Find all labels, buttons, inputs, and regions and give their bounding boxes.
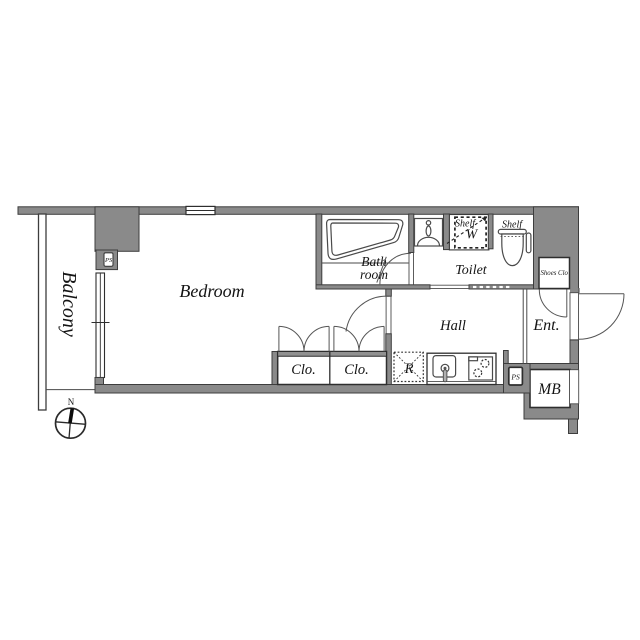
- svg-text:W: W: [466, 227, 479, 242]
- svg-text:Hall: Hall: [439, 318, 466, 334]
- svg-text:Bedroom: Bedroom: [179, 281, 244, 301]
- svg-text:PS: PS: [510, 373, 520, 382]
- svg-text:PS: PS: [104, 257, 113, 264]
- svg-text:N: N: [68, 397, 75, 407]
- svg-text:Toilet: Toilet: [455, 263, 487, 278]
- svg-text:Clo.: Clo.: [344, 362, 369, 378]
- svg-text:MB: MB: [537, 381, 561, 398]
- svg-text:R: R: [404, 361, 414, 377]
- svg-text:Shoes Clo: Shoes Clo: [541, 270, 569, 277]
- svg-text:Clo.: Clo.: [291, 362, 316, 378]
- svg-text:Ent.: Ent.: [532, 317, 559, 334]
- svg-text:Balcony: Balcony: [58, 271, 80, 337]
